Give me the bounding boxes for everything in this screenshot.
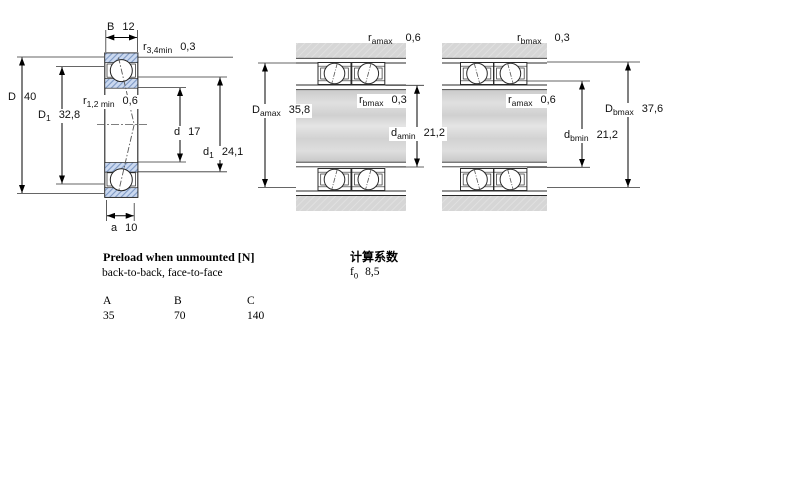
- dim-label-da-max: Damax35,8: [250, 104, 312, 118]
- preload-subtitle: back-to-back, face-to-face: [102, 266, 223, 280]
- dim-label-r12min: r1,2 min0,6: [81, 95, 140, 109]
- dim-label-r34min: r3,4min0,3: [143, 41, 195, 55]
- dim-label-a: a10: [111, 222, 137, 236]
- preload-val-b: 70: [174, 309, 186, 323]
- preload-val-a: 35: [103, 309, 115, 323]
- figure-pair-arrangement-2: [442, 43, 547, 211]
- preload-val-c: 140: [247, 309, 264, 323]
- dim-label-ramax-mid: ramax0,6: [506, 94, 558, 108]
- dim-label-d1-outer: D132,8: [36, 109, 82, 123]
- dim-label-b: B12: [107, 21, 135, 35]
- calc-factors-title: 计算系数: [350, 250, 398, 264]
- dim-label-d-bore: d17: [172, 126, 202, 140]
- preload-col-b: B: [174, 294, 182, 308]
- dim-label-ramax-top: ramax0,6: [368, 32, 421, 46]
- preload-col-a: A: [103, 294, 111, 308]
- calc-factor-f0: f08,5: [350, 265, 379, 280]
- dim-label-rbmax-top: rbmax0,3: [517, 32, 570, 46]
- preload-title: Preload when unmounted [N]: [103, 250, 254, 264]
- dim-label-d-outer: D40: [8, 91, 36, 105]
- dim-label-rbmax-mid: rbmax0,3: [357, 94, 409, 108]
- preload-col-c: C: [247, 294, 255, 308]
- dim-label-db-max: Dbmax37,6: [603, 103, 665, 117]
- dim-label-d1-inner: d124,1: [201, 146, 245, 160]
- bearing-datasheet-drawing: B12 r3,4min0,3 D40 r1,2 min0,6 D132,8 d1…: [0, 0, 800, 500]
- dim-label-da-min: damin21,2: [389, 127, 447, 141]
- dim-label-db-min: dbmin21,2: [562, 129, 620, 143]
